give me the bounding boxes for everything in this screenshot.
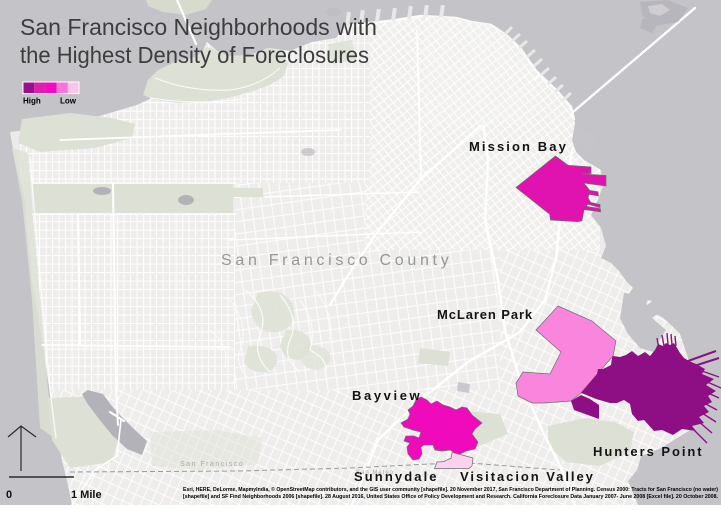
svg-text:San Mateo: San Mateo [356,470,394,476]
svg-text:High: High [23,97,41,106]
svg-text:the Highest Density of Foreclo: the Highest Density of Foreclosures [20,42,369,68]
svg-text:Hunters Point: Hunters Point [593,444,704,459]
svg-text:Esri, HERE, DeLorme, MapmyIndi: Esri, HERE, DeLorme, MapmyIndia, © OpenS… [183,486,718,493]
svg-text:San Francisco Neighborhoods wi: San Francisco Neighborhoods with [20,14,377,40]
svg-text:San Francisco: San Francisco [180,461,244,468]
svg-text:0: 0 [6,489,12,501]
svg-text:San Francisco County: San Francisco County [221,252,452,269]
svg-text:[shapefile] and SF Find Neighb: [shapefile] and SF Find Neighborhoods 20… [183,494,718,500]
svg-text:1 Mile: 1 Mile [71,489,102,501]
svg-text:Visitacion Valley: Visitacion Valley [460,469,595,484]
svg-text:Mission Bay: Mission Bay [469,139,568,154]
svg-text:McLaren Park: McLaren Park [437,307,533,322]
svg-text:Low: Low [60,97,77,106]
svg-text:Bayview: Bayview [352,388,422,403]
